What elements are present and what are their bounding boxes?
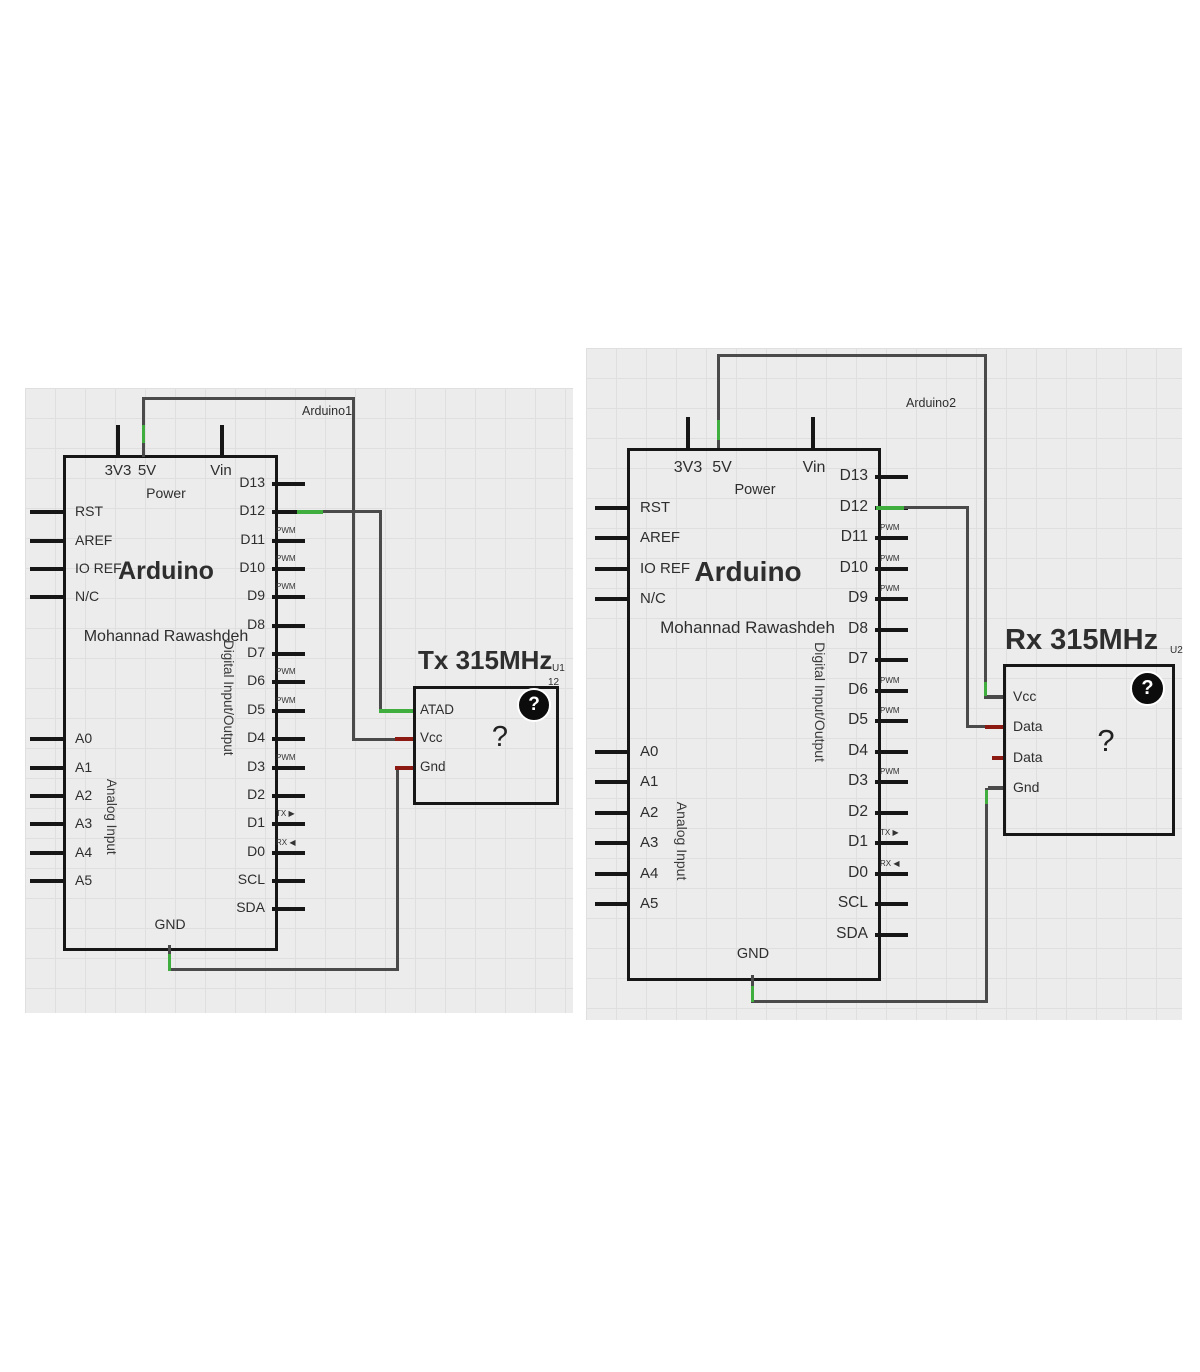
pin-label-D9: D9 <box>175 587 265 603</box>
pin-stub-SDA <box>875 933 908 937</box>
pin-label-SDA: SDA <box>175 899 265 915</box>
pin-label-A3: A3 <box>640 834 658 851</box>
pin-label-SCL: SCL <box>175 871 265 887</box>
pin-stub-D4 <box>875 750 908 754</box>
pin-label-A1: A1 <box>640 773 658 790</box>
pin-stub-D10 <box>272 567 305 571</box>
pin-label-D12: D12 <box>783 498 868 516</box>
unknown-part-glyph: ? <box>1092 723 1120 759</box>
pin-label-D7: D7 <box>175 644 265 660</box>
pin-label-D1: D1 <box>175 814 265 830</box>
pin-tag-D1: TX ▶ <box>880 828 899 837</box>
wire-connected-segment <box>751 986 754 1002</box>
pin-stub-D9 <box>272 595 305 599</box>
pin-stub-D0 <box>875 872 908 876</box>
pin-tag-D9: PWM <box>880 584 900 593</box>
rx-module-title: Rx 315MHz <box>1005 624 1185 657</box>
pin-label-A5: A5 <box>75 872 92 888</box>
pin-tag-D0: RX ◀ <box>276 838 296 847</box>
pin-label-D8: D8 <box>783 620 868 638</box>
pin-label-D13: D13 <box>175 474 265 490</box>
pin-stub-D1 <box>875 841 908 845</box>
pin-stub-D5 <box>875 719 908 723</box>
pin-label-D13: D13 <box>783 467 868 485</box>
pin-stub-A2 <box>595 811 627 815</box>
module-pin-label-Data: Data <box>1013 749 1043 765</box>
pin-label-D11: D11 <box>783 528 868 546</box>
wire-connected-segment <box>985 790 988 804</box>
wire-connected-segment <box>142 425 145 443</box>
pin-label-D3: D3 <box>175 758 265 774</box>
pin-stub-A0 <box>595 750 627 754</box>
wire-segment <box>352 397 355 741</box>
pin-stub-D11 <box>272 539 305 543</box>
net-label-arduino2: Arduino2 <box>906 396 956 410</box>
pin-label-D9: D9 <box>783 589 868 607</box>
pin-stub-A4 <box>30 851 63 855</box>
help-icon-glyph: ? <box>528 694 540 716</box>
pin-stub-D0 <box>272 851 305 855</box>
module-pin-label-Gnd: Gnd <box>1013 779 1039 795</box>
pin-label-N/C: N/C <box>75 588 99 604</box>
pin-label-D4: D4 <box>783 742 868 760</box>
pin-label-A4: A4 <box>75 844 92 860</box>
pin-label-A4: A4 <box>640 865 658 882</box>
pin-stub-D13 <box>272 482 305 486</box>
unknown-part-glyph: ? <box>486 721 514 754</box>
pin-label-N/C: N/C <box>640 590 666 607</box>
pin-label-A2: A2 <box>640 804 658 821</box>
pin-stub-D2 <box>875 811 908 815</box>
pin-stub-vin <box>220 425 224 457</box>
wire-segment <box>717 354 987 357</box>
wire-segment <box>966 506 969 728</box>
module-pin-label-Gnd: Gnd <box>420 759 446 775</box>
pin-tag-D6: PWM <box>880 676 900 685</box>
pin-tag-D3: PWM <box>276 753 296 762</box>
pin-label-SDA: SDA <box>783 925 868 943</box>
pin-label-D7: D7 <box>783 650 868 668</box>
pin-stub-RST <box>30 510 63 514</box>
pin-label-D0: D0 <box>783 864 868 882</box>
pin-stub-D3 <box>875 780 908 784</box>
pin-tag-D11: PWM <box>276 526 296 535</box>
analog-group-label: Analog Input <box>103 757 119 877</box>
pin-label-D2: D2 <box>175 786 265 802</box>
pin-tag-D11: PWM <box>880 523 900 532</box>
pin-stub-SCL <box>875 902 908 906</box>
pin-label-gnd: GND <box>140 916 200 932</box>
pin-stub-A4 <box>595 872 627 876</box>
wire-segment <box>751 1000 988 1003</box>
pin-label-D11: D11 <box>175 531 265 547</box>
wire-segment <box>352 738 398 741</box>
pin-label-D0: D0 <box>175 843 265 859</box>
pin-label-D2: D2 <box>783 803 868 821</box>
pin-label-D5: D5 <box>783 711 868 729</box>
pin-tag-D1: TX ▶ <box>276 809 295 818</box>
pin-stub-A1 <box>30 766 63 770</box>
analog-group-label: Analog Input <box>674 781 690 901</box>
pin-label-5v: 5V <box>135 462 159 479</box>
pin-tag-D10: PWM <box>276 554 296 563</box>
module-pin-stub-ATAD <box>395 709 413 713</box>
pin-label-D10: D10 <box>783 559 868 577</box>
wire-connected-segment <box>717 420 720 440</box>
module-pin-label-ATAD: ATAD <box>420 702 454 718</box>
help-icon: ? <box>1130 671 1165 706</box>
pin-label-D1: D1 <box>783 833 868 851</box>
pin-stub-D8 <box>272 624 305 628</box>
pin-label-D12: D12 <box>175 502 265 518</box>
pin-stub-D11 <box>875 536 908 540</box>
wire-segment <box>984 354 987 697</box>
wire-segment <box>396 768 399 971</box>
pin-stub-D3 <box>272 766 305 770</box>
pin-stub-N/C <box>595 597 627 601</box>
pin-label-A2: A2 <box>75 787 92 803</box>
wire-segment <box>142 397 355 400</box>
wire-segment <box>168 968 399 971</box>
tx-module-designator: U1 <box>552 663 565 675</box>
module-pin-stub-Gnd <box>395 766 413 770</box>
pin-label-D3: D3 <box>783 772 868 790</box>
pin-label-5v: 5V <box>708 459 736 477</box>
pin-stub-D6 <box>272 680 305 684</box>
pin-label-IO REF: IO REF <box>640 560 690 577</box>
pin-stub-SCL <box>272 879 305 883</box>
digital-group-label: Digital Input/Output <box>812 617 828 787</box>
pin-stub-D2 <box>272 794 305 798</box>
pin-label-A5: A5 <box>640 895 658 912</box>
pin-stub-IO REF <box>30 567 63 571</box>
pin-tag-D5: PWM <box>276 696 296 705</box>
wire-segment <box>900 506 969 509</box>
pin-label-D4: D4 <box>175 729 265 745</box>
wire-connected-segment <box>984 682 987 696</box>
pin-stub-A3 <box>30 822 63 826</box>
net-label-arduino1: Arduino1 <box>302 404 352 418</box>
pin-stub-D5 <box>272 709 305 713</box>
pin-stub-AREF <box>30 539 63 543</box>
tx-module-title: Tx 315MHz <box>418 646 568 676</box>
pin-label-gnd: GND <box>723 946 783 963</box>
wire-connected-segment <box>297 510 323 514</box>
pin-label-AREF: AREF <box>640 529 680 546</box>
pin-tag-D0: RX ◀ <box>880 859 900 868</box>
pin-stub-RST <box>595 506 627 510</box>
module-pin-label-Data: Data <box>1013 718 1043 734</box>
pin-label-D6: D6 <box>175 672 265 688</box>
pin-stub-A0 <box>30 737 63 741</box>
pin-stub-SDA <box>272 907 305 911</box>
module-pin-stub-Data <box>992 756 1003 760</box>
pin-tag-D10: PWM <box>880 554 900 563</box>
pin-stub-3v3 <box>116 425 120 457</box>
pin-label-3v3: 3V3 <box>670 459 706 477</box>
pin-label-RST: RST <box>640 499 670 516</box>
schematic-canvas: Arduino1 3V3 5V Vin Power Arduino Mohann… <box>0 0 1200 1372</box>
pin-tag-D9: PWM <box>276 582 296 591</box>
pin-stub-3v3 <box>686 417 690 448</box>
pin-stub-AREF <box>595 536 627 540</box>
pin-stub-A3 <box>595 841 627 845</box>
pin-tag-D3: PWM <box>880 767 900 776</box>
pin-stub-IO REF <box>595 567 627 571</box>
pin-label-A1: A1 <box>75 759 92 775</box>
module-pin-label-Vcc: Vcc <box>1013 688 1036 704</box>
wire-connected-segment <box>168 954 171 971</box>
pin-stub-D13 <box>875 475 908 479</box>
pin-label-3v3: 3V3 <box>100 462 136 479</box>
pin-label-A3: A3 <box>75 815 92 831</box>
pin-stub-D9 <box>875 597 908 601</box>
pin-stub-A2 <box>30 794 63 798</box>
pin-stub-D8 <box>875 628 908 632</box>
pin-stub-A5 <box>595 902 627 906</box>
pin-label-D8: D8 <box>175 616 265 632</box>
power-group-label: Power <box>725 482 785 499</box>
pin-label-IO REF: IO REF <box>75 560 122 576</box>
wire-segment <box>985 788 988 1003</box>
pin-stub-N/C <box>30 595 63 599</box>
wire-segment <box>320 510 382 513</box>
pin-label-A0: A0 <box>640 743 658 760</box>
pin-stub-D10 <box>875 567 908 571</box>
wire-connected-segment <box>876 506 904 510</box>
module-pin-stub-Vcc <box>395 737 413 741</box>
pin-label-A0: A0 <box>75 730 92 746</box>
pin-stub-D6 <box>875 689 908 693</box>
pin-tag-D5: PWM <box>880 706 900 715</box>
pin-label-D5: D5 <box>175 701 265 717</box>
help-icon-glyph: ? <box>1141 677 1153 700</box>
pin-stub-vin <box>811 417 815 448</box>
module-pin-stub-Gnd <box>988 786 1003 790</box>
help-icon: ? <box>517 688 551 722</box>
pin-label-D10: D10 <box>175 559 265 575</box>
module-pin-stub-Data <box>985 725 1003 729</box>
pin-stub-D7 <box>875 658 908 662</box>
pin-stub-D4 <box>272 737 305 741</box>
pin-stub-D7 <box>272 652 305 656</box>
pin-stub-A5 <box>30 879 63 883</box>
pin-label-D6: D6 <box>783 681 868 699</box>
rx-module-designator: U2 <box>1170 645 1183 657</box>
module-pin-label-Vcc: Vcc <box>420 730 443 746</box>
wire-segment <box>379 510 382 712</box>
module-pin-stub-Vcc <box>988 695 1003 699</box>
pin-stub-A1 <box>595 780 627 784</box>
pin-label-RST: RST <box>75 503 103 519</box>
pin-label-AREF: AREF <box>75 532 112 548</box>
pin-stub-D1 <box>272 822 305 826</box>
pin-label-SCL: SCL <box>783 894 868 912</box>
pin-tag-D6: PWM <box>276 667 296 676</box>
